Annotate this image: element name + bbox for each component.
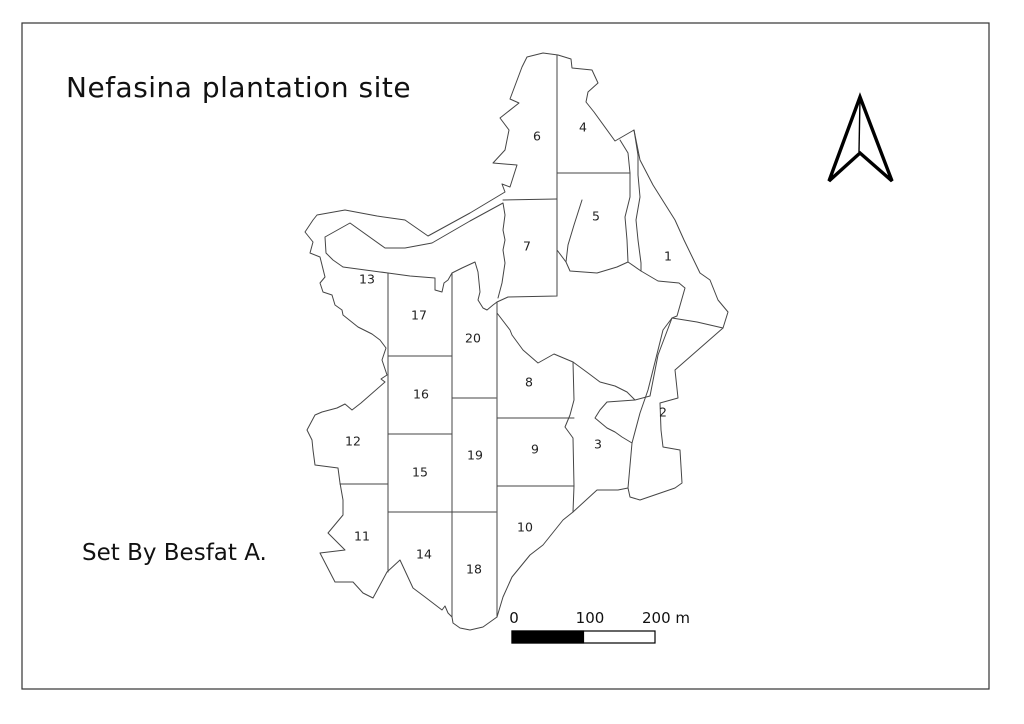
plot-label-10: 10 xyxy=(517,520,533,535)
plot-label-7: 7 xyxy=(523,239,531,254)
map-layout-page: Nefasina plantation site Set By Besfat A… xyxy=(0,0,1024,724)
plot-label-8: 8 xyxy=(525,375,533,390)
plot-3-west-edge xyxy=(565,362,574,512)
plot-label-5: 5 xyxy=(592,209,600,224)
north-arrow-mid-line xyxy=(859,98,860,152)
north-arrow-outline xyxy=(829,97,892,181)
corridor-strip xyxy=(325,203,505,298)
scale-tick-100: 100 xyxy=(576,609,605,627)
strip-east-line xyxy=(634,130,641,271)
plot-label-6: 6 xyxy=(533,129,541,144)
plot-label-18: 18 xyxy=(466,562,482,577)
map-credit: Set By Besfat A. xyxy=(82,540,267,566)
strip-west-line xyxy=(620,140,630,262)
plot-label-11: 11 xyxy=(354,529,370,544)
divider-1-2 xyxy=(672,318,723,328)
scale-tick-0: 0 xyxy=(509,609,519,627)
plot-label-4: 4 xyxy=(579,120,587,135)
divider-2-3 xyxy=(628,318,672,488)
plot-label-15: 15 xyxy=(412,465,428,480)
map-canvas: Nefasina plantation site Set By Besfat A… xyxy=(0,0,1024,724)
scale-bar-filled-half xyxy=(512,631,584,643)
plot-label-2: 2 xyxy=(659,405,667,420)
plot-label-12: 12 xyxy=(345,434,361,449)
plot-label-17: 17 xyxy=(411,308,427,323)
divider-6-7 xyxy=(503,199,557,200)
plot-5-inner-edge xyxy=(566,200,582,262)
plot-label-13: 13 xyxy=(359,272,375,287)
north-arrow xyxy=(829,97,892,181)
plot-labels: 1234567891011121314151617181920 xyxy=(345,120,672,577)
plot-label-3: 3 xyxy=(594,437,602,452)
plot-label-1: 1 xyxy=(664,249,672,264)
map-title: Nefasina plantation site xyxy=(66,71,411,104)
scale-tick-200m: 200 m xyxy=(642,609,690,627)
plot-label-19: 19 xyxy=(467,448,483,463)
plot-label-9: 9 xyxy=(531,442,539,457)
plot-label-16: 16 xyxy=(413,387,429,402)
plot-label-20: 20 xyxy=(465,331,481,346)
scale-bar: 0 100 200 m xyxy=(509,609,690,643)
plot-label-14: 14 xyxy=(416,547,432,562)
page-border xyxy=(22,23,989,689)
